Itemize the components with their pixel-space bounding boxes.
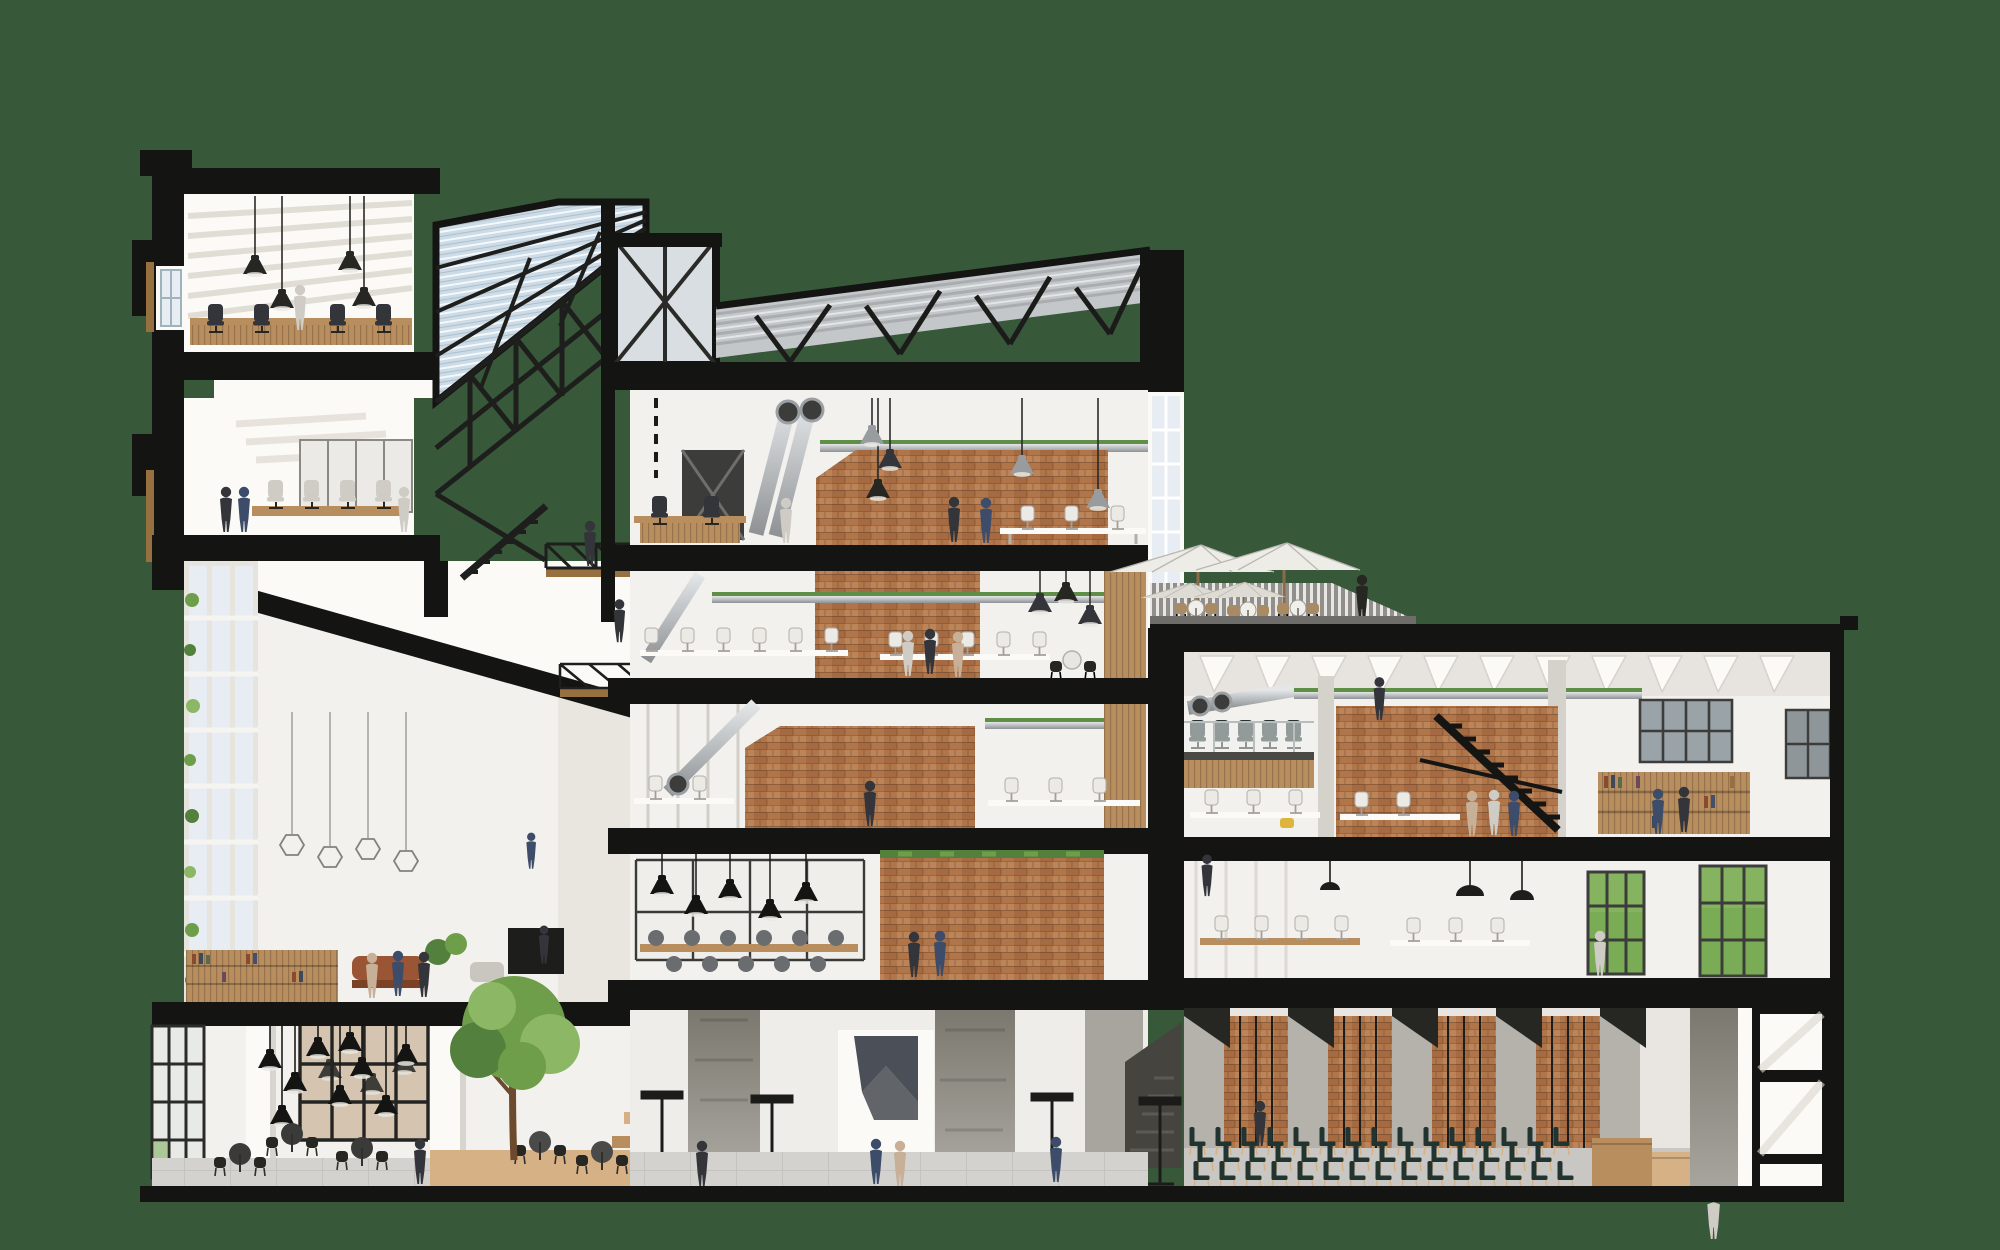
atrium <box>152 506 646 1026</box>
yellow-accent-chair <box>1280 818 1294 828</box>
atrium-window-wall <box>184 561 258 1013</box>
wood-slat-wall <box>1104 571 1146 678</box>
central-office-upper <box>630 390 1148 545</box>
building-section-illustration <box>0 0 2000 1250</box>
right-wing <box>1110 543 1858 1239</box>
wood-deck <box>430 1150 646 1186</box>
party-wall <box>1148 628 1184 1010</box>
central-block <box>608 233 1184 1190</box>
central-cafe-floor <box>630 850 1148 980</box>
right-lower-office <box>1184 854 1830 978</box>
base-slab <box>140 1186 1844 1202</box>
display-screen <box>508 928 564 974</box>
right-open-office <box>1184 652 1830 837</box>
central-office-mid <box>630 704 1148 828</box>
architectural-section-stage <box>0 0 2000 1250</box>
mezzanine-gallery <box>1184 720 1314 788</box>
rust-sofa <box>352 956 424 980</box>
right-facade-edge <box>1830 626 1844 1200</box>
display-niches <box>1752 1008 1830 1196</box>
central-canteen <box>614 571 1148 680</box>
central-lobby <box>630 1010 1182 1190</box>
green-window-2 <box>1700 866 1766 976</box>
left-tower <box>132 150 440 590</box>
